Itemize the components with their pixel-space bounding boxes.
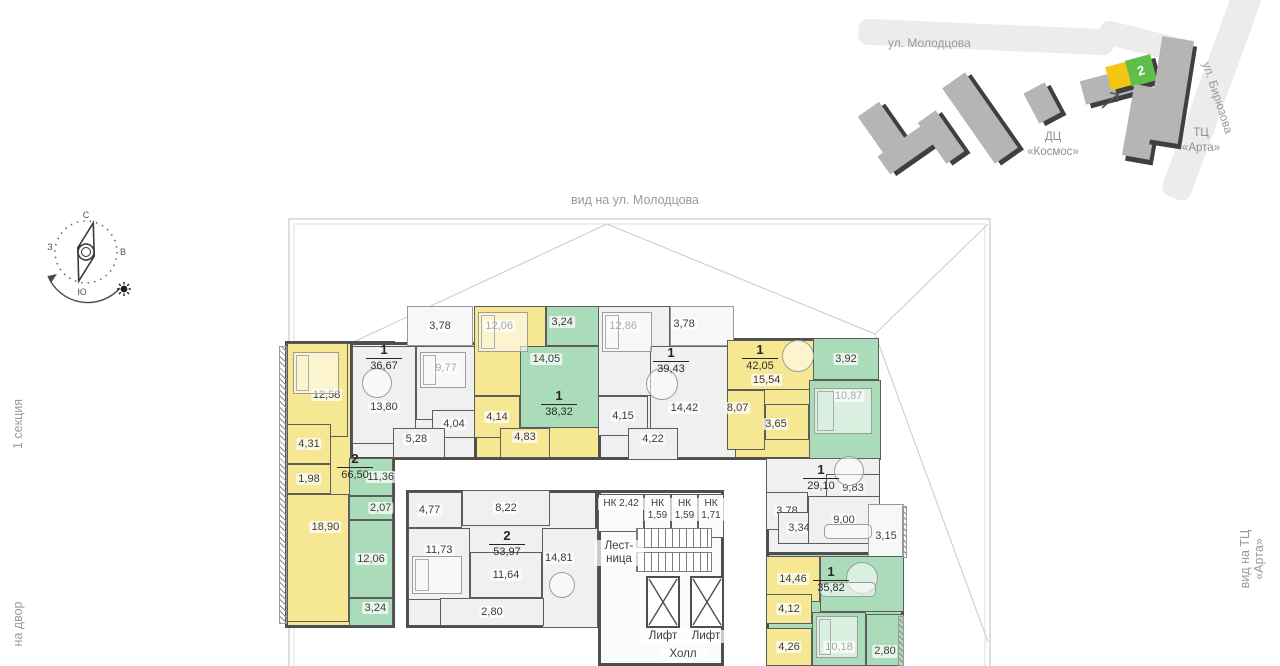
lift-label: Лифт [641,630,685,643]
room-area-label: 4,77 [417,504,442,516]
svg-text:З: З [47,242,52,252]
apartment-rooms-count: 1 [653,346,688,362]
apartment-total-area: 53,97 [484,545,530,558]
apartment-total-area: 36,67 [361,359,407,372]
storage-label: НК 2,42 [598,498,644,510]
bed-icon [412,556,462,594]
bed-icon [814,388,872,434]
building-kosmos-label: ДЦ«Космос» [1008,116,1098,159]
room-area-label: 3,78 [671,318,696,330]
apartment-badge: 129,10 [798,461,844,492]
balcony-hatch [902,506,907,558]
balcony-hatch [898,616,904,666]
section-2-badge: 2 [1125,54,1157,87]
sofa-icon [824,524,872,539]
room-area-label: 18,90 [310,521,342,533]
room [287,494,349,622]
svg-text:В: В [120,247,126,257]
location-minimap: ул. Молодцова ул. Бирюзова 2 ДЦ«Космос» [0,0,1280,200]
room-area-label: 2,80 [479,606,504,618]
stairs [636,528,712,548]
room-area-label: 14,05 [531,353,563,365]
floor-plan-page: С В Ю З ул. Молодцова ул. Бирюзова [0,0,1280,666]
storage-label: НК 1,59 [671,498,698,521]
apartment-badge: 142,05 [737,341,783,372]
apartment-rooms-count: 1 [366,343,401,359]
yard-label: на двор [11,579,25,666]
room-area-label: 3,78 [427,320,452,332]
room-area-label: 3,24 [549,316,574,328]
section-2-badge-label: 2 [1136,62,1147,78]
room-area-label: 4,12 [776,603,801,615]
room-area-label: 8,22 [493,502,518,514]
apartment-rooms-count: 1 [803,463,838,479]
view-label-top: вид на ул. Молодцова [495,193,775,207]
storage-label: НК 1,59 [644,498,671,521]
apartment-badge: 136,67 [361,341,407,372]
apartment-badge: 138,32 [536,387,582,418]
apartment-total-area: 29,10 [798,479,844,492]
apartment-rooms-count: 1 [813,565,848,581]
table-icon [782,340,814,372]
sun-icon [117,282,131,296]
room-area-label: 1,98 [296,473,321,485]
apartment-rooms-count: 1 [742,343,777,359]
apartment-badge: 135,82 [808,563,854,594]
room-area-label: 4,22 [640,433,665,445]
lift-label: Лифт [684,630,728,643]
section-label: 1 секция [11,379,25,469]
svg-text:С: С [83,210,90,220]
bed-icon [420,352,466,388]
room-area-label: 3,15 [873,530,898,542]
room-area-label: 14,42 [669,402,701,414]
apartment-rooms-count: 1 [541,389,576,405]
room [727,390,765,450]
apartment-badge: 253,97 [484,527,530,558]
room-area-label: 2,80 [872,645,897,657]
lift-shaft [646,576,680,628]
pointer-arrow-icon [1098,88,1124,112]
room-area-label: 4,26 [776,641,801,653]
room-area-label: 4,83 [512,431,537,443]
hall-label: Холл [658,648,708,661]
apartment-badge: 139,43 [648,344,694,375]
bed-icon [478,312,528,352]
bed-icon [293,352,339,394]
apartment-total-area: 35,82 [808,581,854,594]
room-area-label: 3,65 [763,418,788,430]
apartment-rooms-count: 2 [489,529,524,545]
apartment-total-area: 66,50 [332,468,378,481]
room-area-label: 11,64 [491,569,522,581]
room-area-label: 8,07 [725,402,750,414]
apartment-total-area: 42,05 [737,359,783,372]
room-area-label: 12,06 [355,553,387,565]
compass-icon: С В Ю З [20,202,150,307]
balcony-hatch [279,346,287,624]
room-area-label: 3,24 [363,602,388,614]
room-area-label: 14,81 [543,552,575,564]
room-area-label: 4,31 [296,438,321,450]
table-icon [549,572,575,598]
room-area-label: 2,07 [368,502,393,514]
building-arta-label: ТЦ«Арта» [1166,112,1236,155]
apartment-badge: 266,50 [332,450,378,481]
room-area-label: 11,73 [424,544,455,556]
apartment-total-area: 38,32 [536,405,582,418]
room-area-label: 4,04 [441,418,466,430]
room-area-label: 15,54 [751,374,783,386]
apartment-rooms-count: 2 [337,452,372,468]
view-label-right: вид на ТЦ «Арта» [1238,509,1266,609]
room-area-label: 4,14 [484,411,509,423]
room-area-label: 13,80 [368,401,400,413]
room-area-label: 4,15 [610,410,635,422]
table-icon [362,368,392,398]
apartment-total-area: 39,43 [648,362,694,375]
storage-label: НК 1,71 [698,498,724,521]
lift-shaft [690,576,724,628]
svg-text:Ю: Ю [77,287,86,297]
room-area-label: 5,28 [404,432,429,444]
stairs-label: Лест- ница [594,540,644,566]
street-molodtsova-label: ул. Молодцова [888,36,971,50]
room-area-label: 3,92 [833,353,858,365]
room-area-label: 14,46 [777,573,809,585]
bed-icon [602,312,652,352]
bed-icon [816,616,858,658]
stairs [636,552,712,572]
